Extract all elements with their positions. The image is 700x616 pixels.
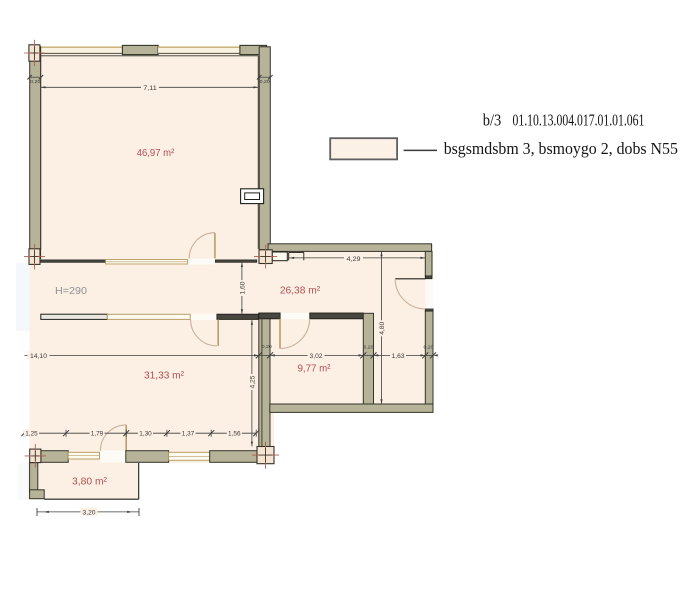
svg-text:1,25: 1,25 [25,431,38,438]
svg-text:14,10: 14,10 [30,353,47,360]
svg-text:H=290: H=290 [55,286,87,297]
svg-text:1,63: 1,63 [392,353,405,360]
svg-text:1,37: 1,37 [182,431,195,438]
svg-text:0,20: 0,20 [424,345,434,350]
svg-text:3,20: 3,20 [83,510,96,517]
svg-text:4,25: 4,25 [249,375,256,388]
svg-text:1,79: 1,79 [91,431,104,438]
svg-text:4,29: 4,29 [347,256,361,263]
svg-text:26,38 m²: 26,38 m² [280,286,321,297]
svg-text:b/3: b/3 [483,110,502,129]
svg-text:3,02: 3,02 [310,353,323,360]
svg-text:0,20: 0,20 [30,79,41,84]
svg-text:3,80 m²: 3,80 m² [72,476,108,487]
svg-text:bsgsmdsbm 3, bsmoygo 2, dobs N: bsgsmdsbm 3, bsmoygo 2, dobs N55 [444,139,678,158]
svg-text:0,20: 0,20 [262,344,272,349]
svg-text:9,77 m²: 9,77 m² [298,363,332,374]
svg-text:01.10.13.004.017.01.01.061: 01.10.13.004.017.01.01.061 [513,110,645,129]
svg-text:1,60: 1,60 [239,281,246,294]
svg-text:0,20: 0,20 [364,345,374,350]
svg-text:4,80: 4,80 [379,321,386,334]
svg-text:7,11: 7,11 [143,85,157,92]
svg-text:31,33 m²: 31,33 m² [144,370,185,381]
svg-text:46,97 m²: 46,97 m² [137,148,175,159]
svg-text:1,30: 1,30 [139,431,152,438]
svg-text:1,56: 1,56 [228,431,241,438]
svg-text:0,20: 0,20 [260,79,271,84]
